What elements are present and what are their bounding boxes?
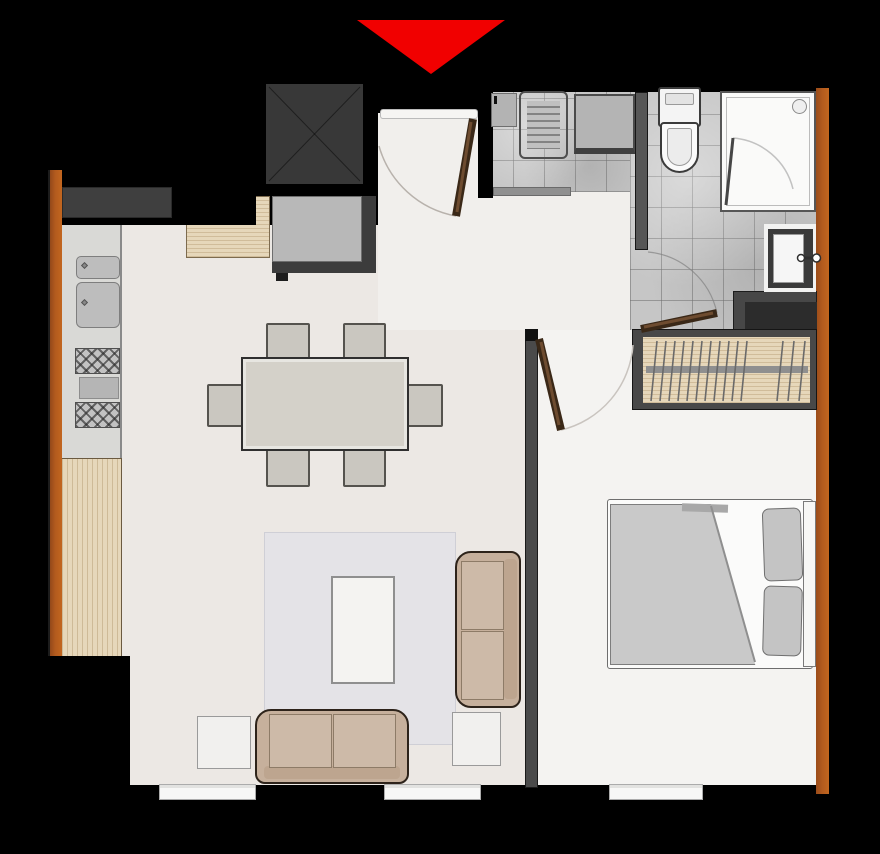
annotations-layer [0,0,880,854]
entry-door-swing-arc [379,146,456,216]
bedroom-door-swing-arc [561,345,633,430]
entry-door-leaf-face [457,122,471,212]
shower-door-swing-arc [733,138,793,189]
washbasin-faucet-icon [798,254,821,262]
shower-door-glass [726,138,733,205]
bedroom-door-leaf-face [541,342,559,425]
entrance-arrow-icon [357,20,505,74]
shaft-cross-lines [269,87,360,181]
floor-plan [0,0,880,854]
wardrobe-hanger-lines [651,341,805,401]
duvet-fold-line [711,506,755,662]
bathroom-door-swing-arc [648,252,717,313]
